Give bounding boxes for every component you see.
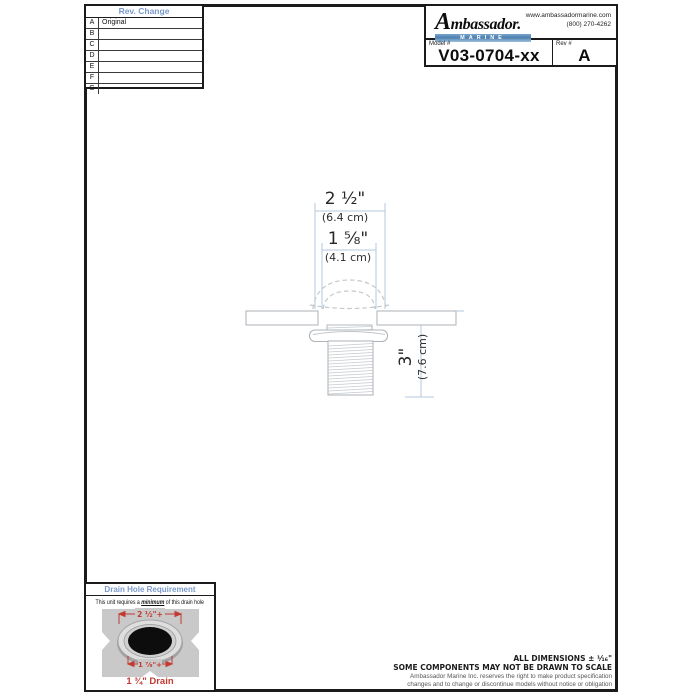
table-row: F — [86, 73, 202, 84]
rev-change — [99, 29, 202, 39]
table-row: G — [86, 84, 202, 94]
website-text: www.ambassadormarine.com — [526, 11, 611, 20]
table-row: E — [86, 62, 202, 73]
rev-change — [99, 73, 202, 83]
title-block: Ambassador. MARINE www.ambassadormarine.… — [424, 4, 618, 67]
drain-hole-illustration: 2 ½"+ 1 ⅞"+ — [86, 584, 214, 690]
title-block-header: Ambassador. MARINE www.ambassadormarine.… — [426, 6, 616, 38]
rev-letter: B — [86, 29, 99, 39]
drain-dim-bottom: 1 ⅞"+ — [138, 661, 162, 669]
rev-change — [99, 40, 202, 50]
rev-cell: Rev # A — [553, 40, 616, 65]
table-row: D — [86, 51, 202, 62]
rev-letter: C — [86, 40, 99, 50]
dim-length-in: 3" — [398, 327, 414, 387]
legal-note-line1: Ambassador Marine Inc. reserves the righ… — [393, 673, 612, 681]
tolerance-note: ALL DIMENSIONS ± ¹⁄₁₆" — [393, 654, 612, 663]
model-cell: Model # V03-0704-xx — [426, 40, 553, 65]
rev-letter: G — [86, 84, 99, 94]
table-row: B — [86, 29, 202, 40]
revision-table-title: Rev. Change — [86, 6, 202, 18]
legal-note-line2: changes and to change or discontinue mod… — [393, 681, 612, 689]
brand-name: Ambassador. — [435, 9, 535, 36]
rev-letter: F — [86, 73, 99, 83]
drain-size-caption: 1 ¾" Drain — [86, 676, 214, 687]
rev-letter: D — [86, 51, 99, 61]
drain-dim-top: 2 ½"+ — [137, 610, 163, 619]
table-row: C — [86, 40, 202, 51]
ambassador-marine-logo: Ambassador. MARINE — [435, 9, 535, 42]
model-rev-row: Model # V03-0704-xx Rev # A — [426, 38, 616, 65]
rev-change — [99, 51, 202, 61]
model-number: V03-0704-xx — [426, 46, 552, 66]
table-row: A Original — [86, 18, 202, 29]
drain-hole-requirement-box: Drain Hole Requirement This unit require… — [84, 582, 216, 692]
rev-change: Original — [99, 18, 202, 28]
engineering-drawing-sheet: Rev. Change A Original B C D E F G — [0, 0, 700, 700]
dim-length-cm: (7.6 cm) — [415, 327, 429, 387]
rev-letter: E — [86, 62, 99, 72]
footer-disclaimer: ALL DIMENSIONS ± ¹⁄₁₆" SOME COMPONENTS M… — [393, 654, 612, 689]
rev-letter: A — [86, 18, 99, 28]
rev-value: A — [553, 46, 616, 66]
contact-info: www.ambassadormarine.com (800) 270-4262 — [526, 11, 611, 30]
dim-neck-width-cm: (4.1 cm) — [303, 251, 393, 264]
drain-hole — [128, 627, 172, 655]
drain-flange — [117, 620, 183, 665]
scale-note: SOME COMPONENTS MAY NOT BE DRAWN TO SCAL… — [393, 663, 612, 672]
revision-table: Rev. Change A Original B C D E F G — [84, 4, 204, 89]
phone-text: (800) 270-4262 — [526, 20, 611, 29]
rev-change — [99, 62, 202, 72]
rev-change — [99, 84, 202, 94]
dim-flange-width-cm: (6.4 cm) — [300, 211, 390, 224]
dim-neck-width-in: 1 ⁵⁄₈" — [303, 229, 393, 249]
dim-flange-width-in: 2 ¹⁄₂" — [300, 189, 390, 209]
